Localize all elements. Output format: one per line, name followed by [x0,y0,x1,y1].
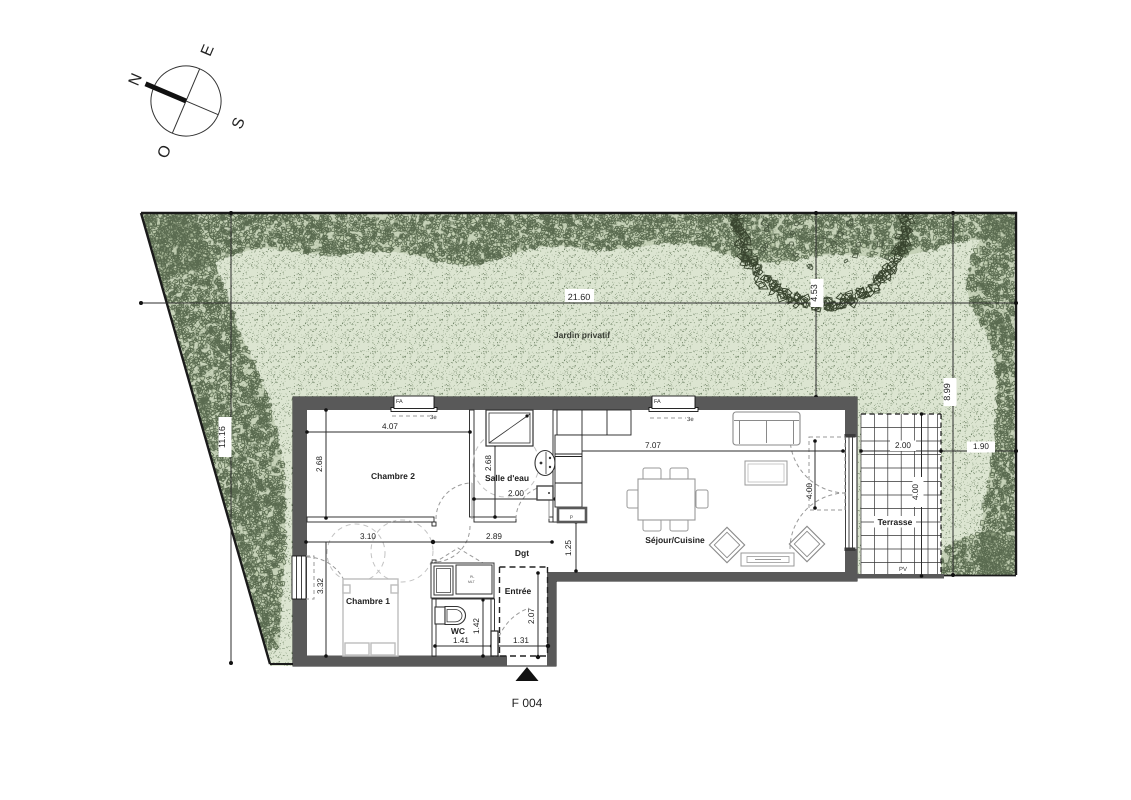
svg-text:PV: PV [899,566,907,573]
svg-text:MLT: MLT [468,580,476,584]
svg-text:1.41: 1.41 [453,636,469,645]
svg-text:E: E [198,42,218,58]
svg-text:2.68: 2.68 [484,455,493,471]
svg-text:7.07: 7.07 [645,441,661,450]
svg-text:1.31: 1.31 [513,636,529,645]
svg-text:4.00: 4.00 [805,483,814,499]
svg-text:Salle d'eau: Salle d'eau [485,473,529,483]
svg-text:Dgt: Dgt [515,548,529,558]
svg-text:1.42: 1.42 [472,618,481,634]
svg-text:3.10: 3.10 [360,532,376,541]
svg-text:21.60: 21.60 [568,292,591,302]
svg-text:Entrée: Entrée [505,586,532,596]
svg-text:Chambre 1: Chambre 1 [346,596,390,606]
svg-text:1.90: 1.90 [973,442,989,451]
svg-text:4.00: 4.00 [911,484,920,500]
svg-text:FA: FA [396,399,403,405]
svg-text:Terrasse: Terrasse [878,517,913,527]
svg-text:2.89: 2.89 [486,532,502,541]
svg-text:3e: 3e [687,416,694,423]
svg-text:PL: PL [470,575,474,579]
svg-text:2.00: 2.00 [508,489,524,498]
svg-text:4.07: 4.07 [382,422,398,431]
svg-text:N: N [126,71,146,88]
svg-text:FA: FA [654,399,661,405]
svg-text:3.32: 3.32 [316,578,325,594]
svg-text:Séjour/Cuisine: Séjour/Cuisine [645,535,705,545]
svg-text:p: p [570,514,573,520]
svg-text:Chambre 2: Chambre 2 [371,471,415,481]
svg-text:1.25: 1.25 [564,540,573,556]
svg-text:F 004: F 004 [512,696,543,710]
svg-text:2.00: 2.00 [895,441,911,450]
svg-text:4.53: 4.53 [809,284,819,302]
svg-text:8.99: 8.99 [942,383,952,401]
svg-text:S: S [229,115,249,131]
svg-text:2.07: 2.07 [527,608,536,624]
svg-text:Jardin privatif: Jardin privatif [554,330,610,340]
svg-text:11.16: 11.16 [217,426,227,448]
svg-text:WC: WC [451,626,465,636]
svg-text:2.68: 2.68 [315,456,324,472]
svg-text:3e: 3e [430,414,437,421]
svg-text:O: O [155,143,176,161]
